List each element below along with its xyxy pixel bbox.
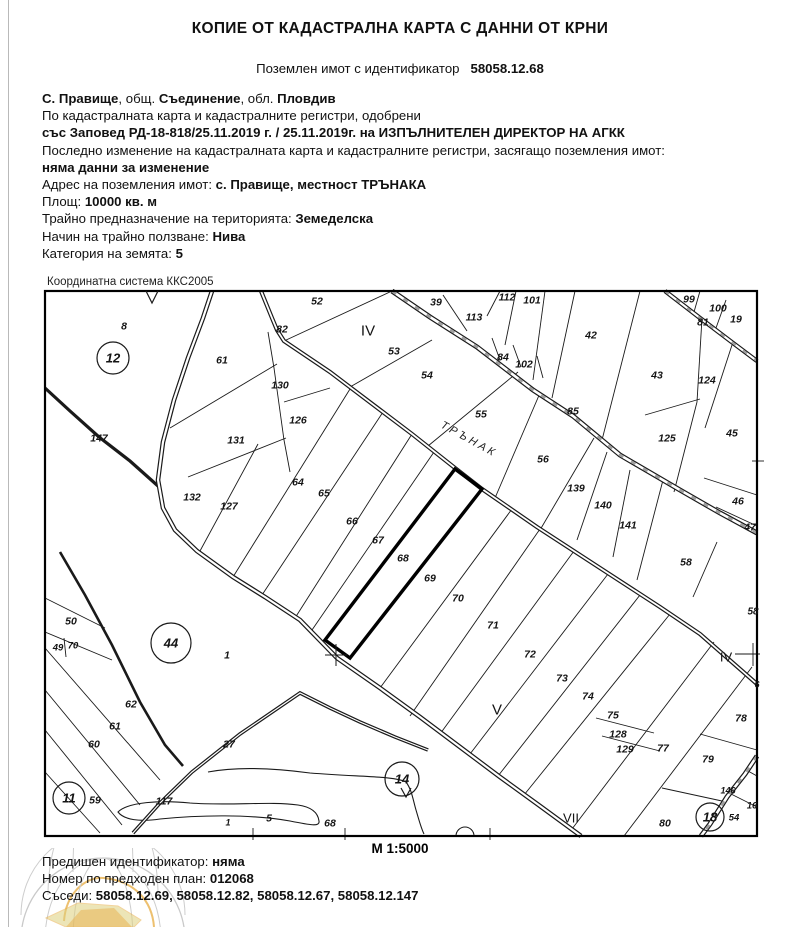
parcel-boundary xyxy=(697,318,702,402)
parcel-boundary xyxy=(645,399,700,415)
parcel-boundary xyxy=(440,551,574,734)
parcel-label: 68 xyxy=(324,818,336,830)
parcel-label: 47 xyxy=(743,522,757,534)
parcel-label: 130 xyxy=(271,380,289,392)
parcel-label: 27 xyxy=(222,739,236,751)
parcel-label: 71 xyxy=(487,620,499,632)
parcel-label: IV xyxy=(720,650,733,665)
parcel-label: 69 xyxy=(424,573,436,585)
parcel-boundary xyxy=(524,614,670,795)
parcel-label: 100 xyxy=(709,303,727,315)
parcel-label: 16 xyxy=(747,801,758,812)
parcel-boundary xyxy=(693,542,717,597)
parcel-label: 61 xyxy=(109,721,121,733)
parcel-boundary xyxy=(662,788,722,801)
border-tick xyxy=(146,291,158,303)
parcel-label: 6 xyxy=(754,680,760,690)
parcel-boundary xyxy=(674,402,697,492)
parcel-boundary xyxy=(602,291,640,440)
parcel-label: 140 xyxy=(594,500,612,512)
parcel-label: 132 xyxy=(183,492,201,504)
parcel-label: 49 xyxy=(52,643,64,654)
road-south xyxy=(133,693,428,833)
parcel-label: 50 xyxy=(65,616,77,628)
parcel-label: 52 xyxy=(311,296,323,308)
parcel-label: 128 xyxy=(609,729,627,741)
footer-line: Предишен идентификатор: няма xyxy=(42,853,782,870)
parcel-label: 146 xyxy=(720,786,736,796)
parcel-label: 84 xyxy=(497,352,509,364)
locality-label: ТРЪНАК xyxy=(439,419,500,460)
parcel-label: 60 xyxy=(88,739,100,751)
parcel-label: 19 xyxy=(730,314,742,326)
parcel-label: 54 xyxy=(729,813,740,824)
parcel-boundary xyxy=(694,291,700,312)
parcel-label: 75 xyxy=(607,710,619,722)
parcel-label: 70 xyxy=(452,593,464,605)
parcel-label: 126 xyxy=(289,415,307,427)
parcel-label: V xyxy=(492,702,502,719)
parcel-boundary xyxy=(170,364,277,428)
parcel-boundary xyxy=(537,356,543,378)
thick-boundary xyxy=(60,552,183,766)
parcel-label: VII xyxy=(563,811,579,826)
parcel-label: IV xyxy=(361,323,375,340)
massif-number: 11 xyxy=(62,791,76,806)
parcel-boundary xyxy=(45,730,122,825)
parcel-boundary xyxy=(552,291,575,398)
pond-outline xyxy=(456,827,474,836)
parcel-label: 102 xyxy=(515,359,533,371)
parcel-label: 58 xyxy=(680,557,692,569)
parcel-label: 147 xyxy=(90,433,109,445)
parcel-label: 117 xyxy=(156,796,174,808)
massif-number: 44 xyxy=(163,636,179,651)
parcel-label: 113 xyxy=(466,312,483,324)
parcel-label: 139 xyxy=(567,483,585,495)
parcel-boundary xyxy=(268,332,290,472)
parcel-label: 39 xyxy=(430,297,442,309)
parcel-label: 79 xyxy=(702,754,714,766)
parcel-label: 8 xyxy=(121,321,127,333)
parcel-label: 99 xyxy=(683,294,695,306)
parcel-label: 58 xyxy=(747,607,759,618)
parcel-boundary xyxy=(284,388,330,402)
parcel-boundary xyxy=(705,345,732,428)
massif-number: 14 xyxy=(395,772,410,787)
parcel-label: 46 xyxy=(731,496,744,508)
parcel-boundary xyxy=(262,412,383,595)
parcel-label: 53 xyxy=(388,346,400,358)
parcel-boundary xyxy=(577,452,607,540)
massif-number: 18 xyxy=(703,810,718,825)
parcel-label: 77 xyxy=(657,743,670,755)
parcel-boundary xyxy=(284,291,392,341)
road-south-core xyxy=(133,693,428,833)
parcel-label: 131 xyxy=(227,435,245,447)
parcel-label: 62 xyxy=(125,699,137,711)
footer-line: Съседи: 58058.12.69, 58058.12.82, 58058.… xyxy=(42,887,782,904)
document-footer-block: Предишен идентификатор: нямаНомер по пре… xyxy=(42,853,782,905)
parcel-label: 74 xyxy=(582,691,594,703)
parcel-label: 1 xyxy=(224,650,230,662)
parcel-boundary xyxy=(613,470,630,557)
parcel-label: 81 xyxy=(697,317,709,329)
parcel-label: 68 xyxy=(397,553,409,565)
parcel-label: 80 xyxy=(659,818,671,830)
parcel-label: 1 xyxy=(225,818,230,828)
parcel-label: 45 xyxy=(725,428,738,440)
parcel-label: 129 xyxy=(616,744,634,756)
cadastral-document-page: КОПИЕ ОТ КАДАСТРАЛНА КАРТА С ДАННИ ОТ КР… xyxy=(0,0,800,927)
parcel-label: 43 xyxy=(650,370,663,382)
parcel-boundary xyxy=(637,480,663,580)
parcel-label: 125 xyxy=(658,433,676,445)
parcel-label: 64 xyxy=(292,477,304,489)
parcel-label: 72 xyxy=(524,649,536,661)
parcel-label: 112 xyxy=(499,292,516,304)
parcel-label: 66 xyxy=(346,516,358,528)
cadastral-map: 12441114188618252IV391131121019910081194… xyxy=(0,0,800,927)
coordinate-system-label: Координатна система ККС2005 xyxy=(47,276,214,288)
parcel-boundary xyxy=(700,734,757,750)
parcel-label: 82 xyxy=(276,324,288,336)
parcel-label: 55 xyxy=(475,409,487,421)
parcel-label: 73 xyxy=(556,673,568,685)
parcel-label: 61 xyxy=(216,355,228,367)
parcel-label: 78 xyxy=(735,713,747,725)
parcel-label: 141 xyxy=(619,520,637,532)
footer-line: Номер по предходен план: 012068 xyxy=(42,870,782,887)
parcel-label: 85 xyxy=(567,406,579,418)
parcel-boundary xyxy=(200,444,258,551)
parcel-label: 70 xyxy=(68,641,79,652)
parcel-label: 5 xyxy=(266,813,272,825)
pond-outline xyxy=(118,802,319,825)
parcel-boundary xyxy=(704,478,757,495)
parcel-boundary xyxy=(572,642,714,829)
parcel-label: 54 xyxy=(421,370,433,382)
parcel-label: 67 xyxy=(372,535,385,547)
parcel-label: 42 xyxy=(584,330,597,342)
parcel-label: 59 xyxy=(89,795,101,807)
parcel-label: 56 xyxy=(537,454,549,466)
parcel-label: 65 xyxy=(318,488,330,500)
massif-number: 12 xyxy=(106,351,121,366)
parcel-label: 124 xyxy=(698,375,716,387)
parcel-boundary xyxy=(495,393,540,498)
road-ne-corner-hatch xyxy=(665,291,757,361)
parcel-label: 101 xyxy=(523,295,541,307)
parcel-boundary xyxy=(624,667,752,836)
parcel-label: 127 xyxy=(220,501,239,513)
